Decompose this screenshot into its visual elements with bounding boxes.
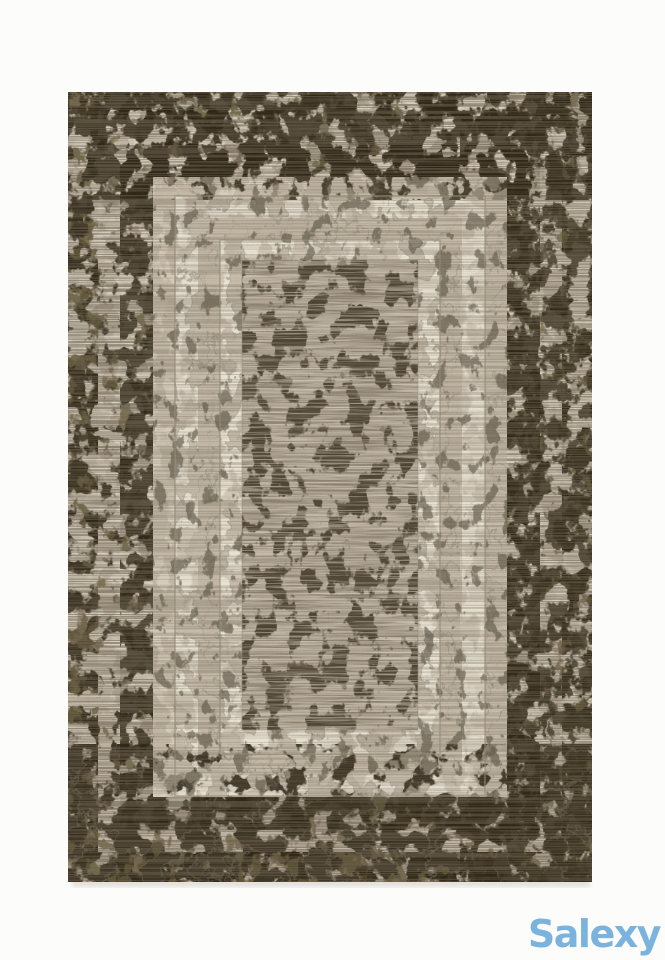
product-photo [0, 0, 665, 960]
watermark-logo: Salexy [528, 915, 660, 953]
rug-image [0, 0, 665, 960]
page-background: Salexy [0, 0, 665, 960]
grain-layer [68, 92, 592, 882]
rug-texture-overlays [68, 92, 592, 882]
